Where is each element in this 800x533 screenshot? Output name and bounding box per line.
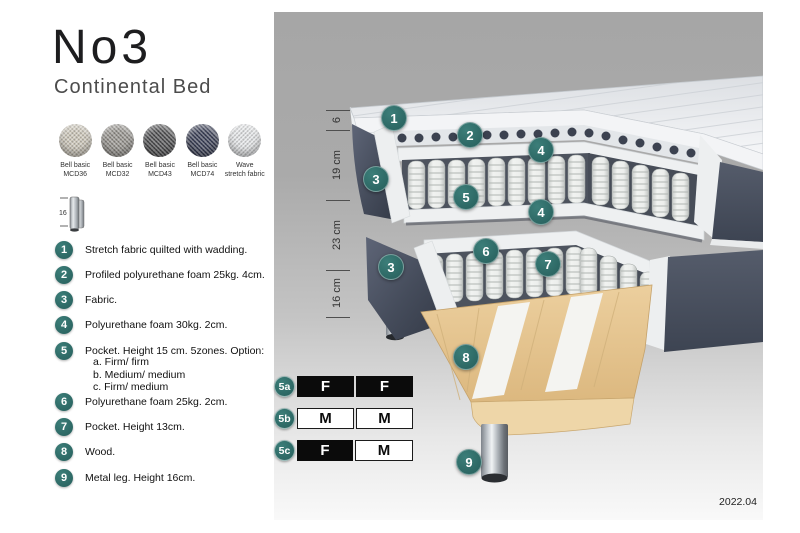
legend-item-2: 2 Profiled polyurethane foam 25kg. 4cm.: [55, 266, 265, 284]
callout-1: 1: [381, 105, 407, 131]
legend-item-7: 7 Pocket. Height 13cm.: [55, 418, 185, 436]
legend-number-badge: 3: [55, 291, 73, 309]
legend-number-badge: 6: [55, 393, 73, 411]
legend-text: Pocket. Height 13cm.: [85, 421, 185, 433]
version-label: 2022.04: [719, 496, 757, 508]
fabric-swatches: Bell basicMCD36 Bell basicMCD32 Bell bas…: [54, 124, 266, 179]
callout-8: 8: [453, 344, 479, 370]
callout-9: 9: [456, 449, 482, 475]
lower-box-right-side: [646, 250, 763, 352]
legend-number-badge: 8: [55, 443, 73, 461]
legend-item-6: 6 Polyurethane foam 25kg. 2cm.: [55, 393, 227, 411]
legend-text: Metal leg. Height 16cm.: [85, 472, 195, 484]
swatch-label: Bell basic: [145, 162, 175, 169]
firmness-cell: F: [297, 376, 354, 397]
legend-item-5-option-c: c. Firm/ medium: [93, 381, 168, 394]
callout-7: 7: [535, 251, 561, 277]
legend-number-badge: 4: [55, 316, 73, 334]
swatch-label: Bell basic: [103, 162, 133, 169]
firmness-badge: 5a: [274, 376, 295, 397]
callout-4-lower: 4: [528, 199, 554, 225]
legend-number-badge: 9: [55, 469, 73, 487]
legend-text: Profiled polyurethane foam 25kg. 4cm.: [85, 269, 265, 281]
legend-item-9: 9 Metal leg. Height 16cm.: [55, 469, 195, 487]
firmness-bar: F F: [297, 376, 413, 397]
swatch-label: Bell basic: [60, 162, 90, 169]
dim-lower: 23 cm: [331, 220, 343, 250]
firmness-cell: M: [297, 408, 354, 429]
legend-item-1: 1 Stretch fabric quilted with wadding.: [55, 241, 247, 259]
callout-2: 2: [457, 122, 483, 148]
legend-item-5-option-a: a. Firm/ firm: [93, 356, 149, 369]
legend-item-8: 8 Wood.: [55, 443, 115, 461]
metal-leg-icon: 16: [52, 190, 96, 247]
fabric-swatch-circle: [59, 124, 92, 157]
swatch-label: Wave: [236, 162, 254, 169]
firmness-bar: M M: [297, 408, 413, 429]
swatch-mcd74: Bell basicMCD74: [181, 124, 223, 179]
firmness-cell: F: [297, 440, 353, 461]
swatch-mcd36: Bell basicMCD36: [54, 124, 96, 179]
ruler-tick: [326, 317, 350, 318]
swatch-wave: Wavestretch fabric: [224, 124, 266, 179]
firmness-cell: M: [355, 440, 413, 461]
callout-3-lower: 3: [378, 254, 404, 280]
legend-number-badge: 2: [55, 266, 73, 284]
callout-5: 5: [453, 184, 479, 210]
ruler-tick: [326, 270, 350, 271]
legend-text: Wood.: [85, 446, 115, 458]
legend-number-badge: 1: [55, 241, 73, 259]
fabric-swatch-circle: [186, 124, 219, 157]
legend-text: Polyurethane foam 30kg. 2cm.: [85, 319, 227, 331]
swatch-mcd43: Bell basicMCD43: [139, 124, 181, 179]
legend-number-badge: 7: [55, 418, 73, 436]
legend-text: Fabric.: [85, 294, 117, 306]
firmness-cell: M: [356, 408, 413, 429]
dim-upper: 19 cm: [331, 150, 343, 180]
leg-height-label: 16: [59, 210, 67, 217]
page-subtitle: Continental Bed: [54, 76, 211, 99]
callout-3-upper: 3: [363, 166, 389, 192]
firmness-badge: 5c: [274, 440, 295, 461]
dim-topper: 6: [331, 117, 343, 123]
swatch-mcd32: Bell basicMCD32: [96, 124, 138, 179]
legend-item-5: 5 Pocket. Height 15 cm. 5zones. Option:: [55, 342, 264, 360]
legend-number-badge: 5: [55, 342, 73, 360]
legend-item-3: 3 Fabric.: [55, 291, 117, 309]
fabric-swatch-circle: [143, 124, 176, 157]
firmness-badge: 5b: [274, 408, 295, 429]
firmness-cell: F: [356, 376, 413, 397]
legend-item-4: 4 Polyurethane foam 30kg. 2cm.: [55, 316, 227, 334]
page-title: No3: [52, 20, 152, 75]
ruler-tick: [326, 200, 350, 201]
legend-text: Polyurethane foam 25kg. 2cm.: [85, 396, 227, 408]
legend-text: Stretch fabric quilted with wadding.: [85, 244, 247, 256]
ruler-tick: [326, 130, 350, 131]
fabric-swatch-circle: [228, 124, 261, 157]
ruler-tick: [326, 110, 350, 111]
dim-legs: 16 cm: [331, 278, 343, 308]
legend-item-5-option-b: b. Medium/ medium: [93, 369, 185, 382]
fabric-swatch-circle: [101, 124, 134, 157]
illustration-panel: 6 19 cm 23 cm 16 cm 1 2 4 3 5 4 6 3 7 8 …: [274, 12, 763, 520]
metal-leg-front: [481, 424, 508, 483]
callout-4-upper: 4: [528, 137, 554, 163]
callout-6: 6: [473, 238, 499, 264]
swatch-label: Bell basic: [187, 162, 217, 169]
firmness-bar: F M: [297, 440, 413, 461]
